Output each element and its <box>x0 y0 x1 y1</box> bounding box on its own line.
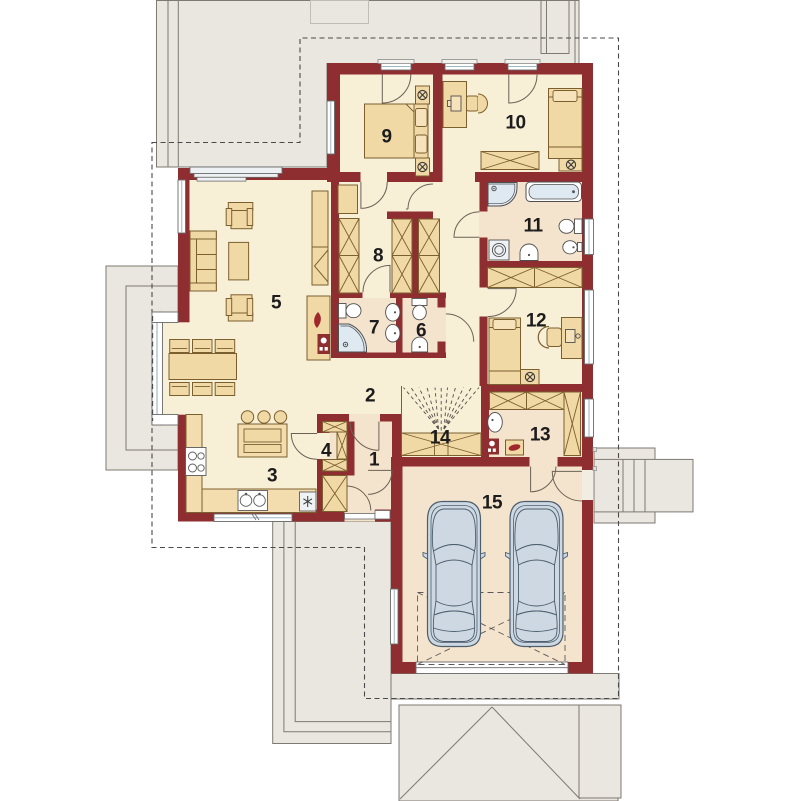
svg-text:1: 1 <box>369 450 380 471</box>
svg-text:7: 7 <box>369 318 379 339</box>
svg-text:13: 13 <box>530 425 550 446</box>
svg-text:6: 6 <box>416 321 426 342</box>
svg-text:3: 3 <box>267 466 277 487</box>
svg-text:12: 12 <box>526 311 546 332</box>
svg-text:4: 4 <box>321 441 332 462</box>
svg-text:8: 8 <box>373 246 383 267</box>
svg-text:11: 11 <box>523 216 543 237</box>
svg-text:9: 9 <box>381 127 391 148</box>
svg-text:2: 2 <box>365 386 375 407</box>
svg-text:10: 10 <box>505 113 525 134</box>
svg-text:14: 14 <box>430 428 451 449</box>
svg-text:5: 5 <box>271 293 282 314</box>
svg-text:15: 15 <box>482 493 503 514</box>
